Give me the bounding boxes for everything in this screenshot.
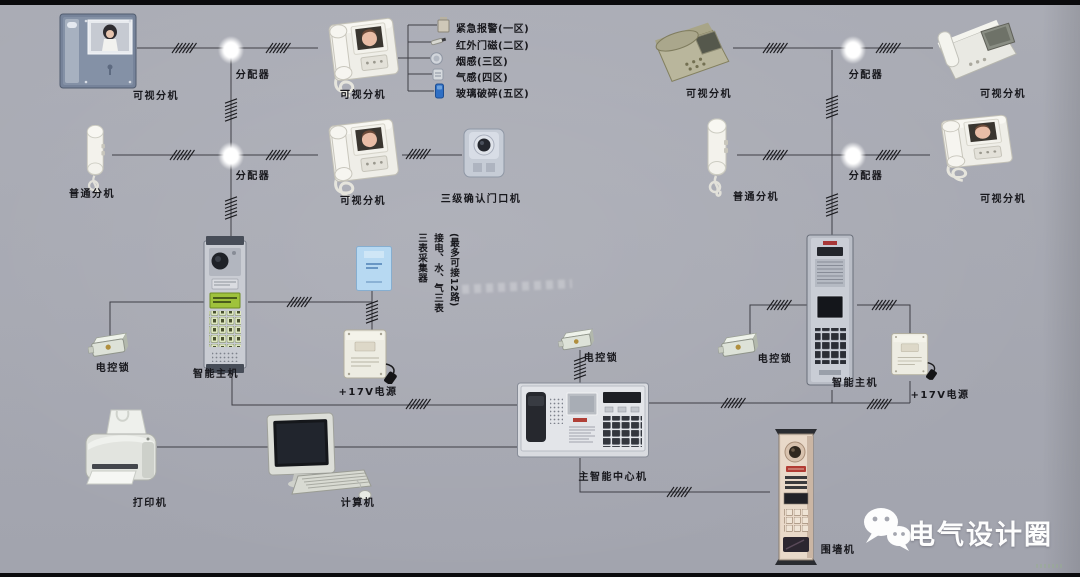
- electric-lock: [88, 332, 130, 360]
- label-videophone: 可视分机: [980, 190, 1026, 205]
- label-distributor: 分配器: [849, 66, 884, 81]
- smoke-detector-icon: [430, 52, 443, 65]
- desk-video-phone: [648, 12, 733, 92]
- label-power-supply: +17V电源: [338, 383, 397, 398]
- video-intercom-phone: [316, 113, 402, 201]
- wechat-icon: [862, 505, 912, 551]
- label-printer: 打印机: [133, 494, 168, 509]
- meter-collector-box: [356, 246, 392, 291]
- label-videophone: 可视分机: [980, 85, 1026, 100]
- label-electric-lock: 电控锁: [584, 349, 619, 364]
- meter-collector-note: (最多可接12路) 接电、水、气三表 三表采集器: [412, 233, 462, 325]
- electric-lock: [718, 332, 760, 360]
- distributor-box: [218, 142, 244, 170]
- label-distributor: 分配器: [236, 167, 271, 182]
- note-max-channels: (最多可接12路): [446, 233, 460, 325]
- label-videophone: 可视分机: [686, 85, 732, 100]
- label-sensor-zone2: 红外门磁(二区): [456, 37, 529, 52]
- gas-detector-icon: [432, 68, 444, 81]
- label-distributor: 分配器: [849, 167, 884, 182]
- desk-video-phone: [932, 16, 1018, 84]
- label-distributor: 分配器: [236, 66, 271, 81]
- distributor-box: [218, 36, 244, 64]
- brand-watermark: 电气设计圈: [908, 513, 1053, 552]
- power-supply-unit: [342, 326, 398, 384]
- label-sensor-zone4: 气感(四区): [456, 69, 508, 84]
- desktop-computer: [262, 412, 374, 504]
- distributor-box: [840, 142, 866, 170]
- wall-gate-station: [770, 429, 822, 565]
- label-sensor-zone1: 紧急报警(一区): [456, 20, 529, 35]
- top-letterbox-bar: [0, 0, 1080, 5]
- audio-handset: [702, 116, 736, 198]
- note-meter-types: 接电、水、气三表: [430, 233, 444, 325]
- distributor-box: [840, 36, 866, 64]
- label-main-console: 主智能中心机: [579, 468, 648, 483]
- label-electric-lock: 电控锁: [96, 359, 131, 374]
- label-smart-host: 智能主机: [193, 365, 239, 380]
- label-smart-host: 智能主机: [832, 374, 878, 389]
- label-computer: 计算机: [341, 494, 376, 509]
- diagram-canvas: 可视分机 分配器 可视分机 紧急报警(一区) 红外门磁(二区) 烟感(三区) 气…: [0, 0, 1080, 577]
- printer: [84, 408, 159, 490]
- label-handset: 普通分机: [69, 185, 115, 200]
- smart-host-panel: [804, 234, 856, 386]
- label-door-station: 三级确认门口机: [441, 190, 522, 205]
- faint-corner-watermark: [1036, 564, 1064, 568]
- label-electric-lock: 电控锁: [758, 350, 793, 365]
- label-sensor-zone5: 玻璃破碎(五区): [456, 85, 529, 100]
- video-door-monitor: [58, 12, 138, 90]
- smart-host-panel: [203, 236, 247, 373]
- label-power-supply: +17V电源: [910, 386, 969, 401]
- center-console: [517, 382, 649, 460]
- label-wall-station: 围墙机: [821, 541, 856, 556]
- label-videophone: 可视分机: [340, 192, 386, 207]
- door-station-camera: [462, 128, 506, 178]
- label-videophone: 可视分机: [340, 86, 386, 101]
- video-intercom-phone: [928, 110, 1016, 184]
- infrared-door-contact-icon: [431, 36, 447, 47]
- glass-break-icon: [434, 83, 445, 99]
- power-supply-unit: [890, 330, 938, 380]
- label-handset: 普通分机: [733, 188, 779, 203]
- label-monitor: 可视分机: [133, 87, 179, 102]
- bottom-letterbox-bar: [0, 573, 1080, 577]
- emergency-alarm-icon: [437, 17, 450, 33]
- note-collector-name: 三表采集器: [414, 233, 428, 325]
- label-sensor-zone3: 烟感(三区): [456, 53, 508, 68]
